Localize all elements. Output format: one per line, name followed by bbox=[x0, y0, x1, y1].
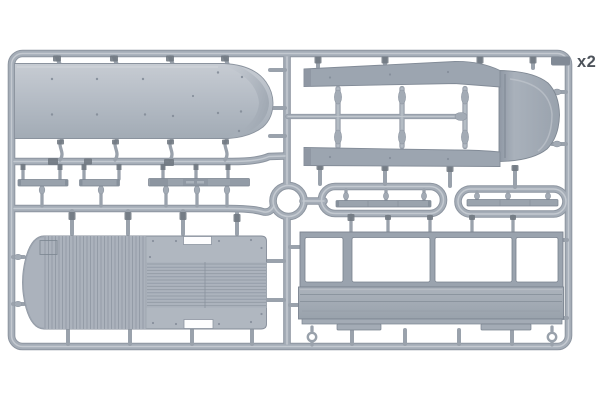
mold-tab bbox=[551, 57, 570, 66]
strip-part-5 bbox=[467, 200, 558, 207]
side-wall-part bbox=[299, 232, 564, 330]
window-opening-4 bbox=[516, 238, 558, 283]
window-opening-1 bbox=[305, 238, 343, 283]
floor-cutout-top bbox=[184, 237, 212, 245]
window-opening-2 bbox=[352, 238, 430, 283]
roof-frame-bottom-rail bbox=[304, 148, 500, 167]
strip-part-4 bbox=[336, 201, 431, 208]
window-opening-3 bbox=[435, 238, 512, 283]
strip-part-2 bbox=[80, 180, 120, 187]
wall-skirt-tab-left bbox=[337, 324, 381, 330]
sprue-illustration: x2 bbox=[0, 0, 600, 400]
quantity-label: x2 bbox=[577, 53, 596, 71]
floor-cutout-bottom bbox=[184, 320, 213, 329]
wall-skirt-tab-right bbox=[481, 324, 531, 330]
strip-part-1 bbox=[18, 180, 68, 187]
roof-panel-part bbox=[15, 64, 274, 139]
wall-lower-panel bbox=[299, 287, 564, 319]
floor-panel-part bbox=[22, 236, 267, 329]
sprue-photo: x2 bbox=[0, 0, 600, 400]
